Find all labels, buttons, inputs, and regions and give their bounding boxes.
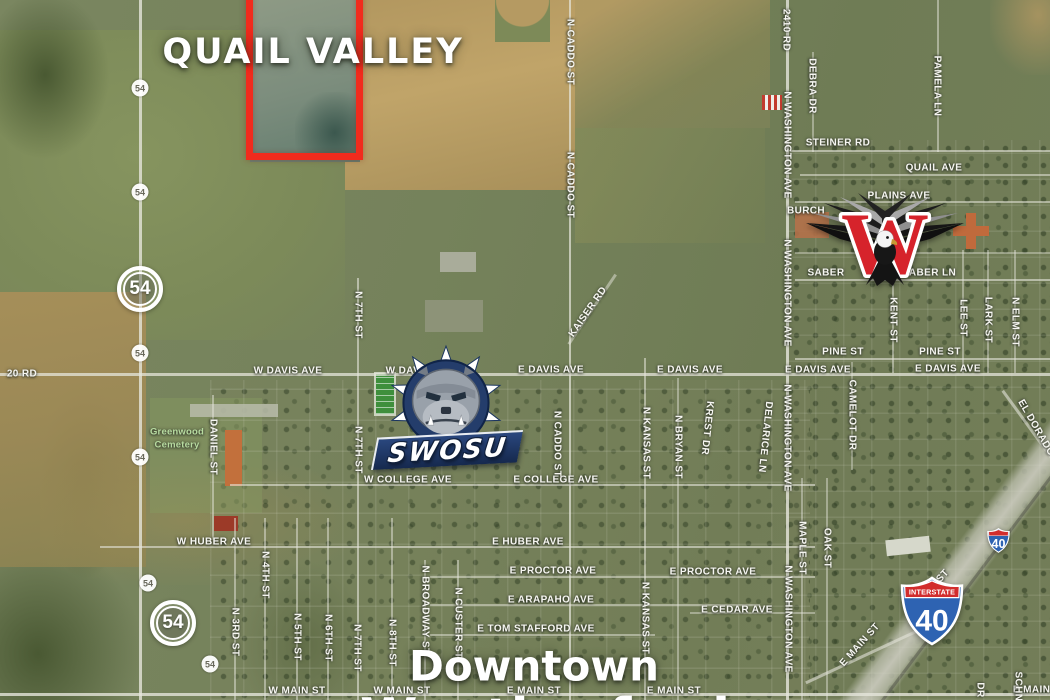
street-label: 2410 RD	[781, 9, 792, 51]
street-label: E CEDAR AVE	[701, 605, 773, 616]
street-label: OAK ST	[822, 528, 833, 568]
highway-54-marker: 54	[132, 449, 149, 466]
interstate-number: 40	[915, 605, 948, 638]
street-label: PINE ST	[919, 347, 961, 358]
terrain-field	[575, 0, 770, 128]
building	[440, 252, 476, 272]
street-label: N 7TH ST	[352, 624, 363, 672]
highway-54-number: 54	[205, 659, 215, 669]
building	[225, 430, 242, 486]
interstate-40-shield: INTERSTATE 40	[900, 574, 964, 648]
street-label: 20 RD	[7, 369, 37, 380]
interstate-number: 40	[992, 537, 1006, 551]
highway-54-marker: 54	[132, 345, 149, 362]
highway-54-marker: 54	[202, 656, 219, 673]
weatherford-eagles-logo: W	[800, 188, 970, 290]
street-label: E PROCTOR AVE	[510, 566, 597, 577]
street-label: E DAVIS AVE	[657, 365, 723, 376]
road	[430, 576, 815, 578]
street-label: W HUBER AVE	[177, 537, 251, 548]
highway-54-number: 54	[162, 612, 183, 634]
highway-54-marker: 54	[117, 266, 163, 312]
street-label: N CADDO ST	[565, 19, 576, 85]
road	[264, 518, 266, 700]
street-label: E DAVIS AVE	[915, 364, 981, 375]
road	[327, 518, 329, 700]
street-label: PAMELA LN	[932, 56, 943, 117]
street-label: N WASHINGTON AVE	[783, 565, 794, 672]
quail-valley-outline	[246, 0, 363, 160]
downtown-label-line1: Downtown	[409, 642, 659, 691]
road	[296, 518, 298, 700]
street-label: N 7TH ST	[353, 426, 364, 474]
street-label: N WASHINGTON AVE	[782, 91, 793, 198]
highway-54-number: 54	[135, 83, 145, 93]
parking-lot	[190, 404, 278, 417]
street-label: N 3RD ST	[230, 608, 241, 657]
street-label: N 6TH ST	[323, 614, 334, 662]
building	[425, 300, 483, 332]
street-label: W DAVIS AVE	[254, 366, 323, 377]
street-label: DR	[975, 682, 986, 697]
ballfield	[495, 0, 550, 42]
terrain-field	[990, 0, 1050, 75]
street-label: N WASHINGTON AVE	[782, 384, 793, 491]
road	[826, 478, 828, 700]
street-label: QUAIL AVE	[906, 163, 963, 174]
street-label: E ARAPAHO AVE	[508, 595, 594, 606]
quail-valley-title: QUAIL VALLEY	[162, 32, 463, 72]
downtown-label-line2: Weatherford	[360, 688, 730, 700]
street-label: N BRYAN ST	[673, 415, 684, 479]
building	[762, 95, 782, 110]
highway-54-number: 54	[135, 187, 145, 197]
highway-54-number: 54	[135, 348, 145, 358]
street-label: DANIEL ST	[208, 419, 219, 475]
street-label: E DAVIS AVE	[785, 365, 851, 376]
street-label: Greenwood	[150, 427, 204, 438]
street-label: KENT ST	[888, 297, 899, 343]
highway-54-marker: 54	[150, 600, 196, 646]
street-label: CAMELOT DR	[847, 380, 858, 451]
street-label: STEINER RD	[806, 138, 871, 149]
highway-54-number: 54	[129, 278, 150, 300]
street-label: Cemetery	[155, 440, 200, 451]
street-label: E HUBER AVE	[492, 537, 564, 548]
road	[790, 150, 1050, 152]
street-label: N KANSAS ST	[641, 407, 652, 479]
street-label: PINE ST	[822, 347, 864, 358]
street-label: E PROCTOR AVE	[670, 567, 757, 578]
interstate-banner-text: INTERSTATE	[909, 588, 955, 597]
road	[795, 358, 1050, 360]
interstate-40-shield-small: 40	[987, 528, 1010, 553]
road	[391, 518, 393, 700]
street-label: LEE ST	[958, 299, 969, 336]
street-label: E TOM STAFFORD AVE	[477, 624, 594, 635]
street-label: LARK ST	[983, 297, 994, 343]
street-label: KAISER RD	[567, 285, 610, 339]
street-label: N 7TH ST	[353, 291, 364, 339]
highway-54-marker: 54	[132, 80, 149, 97]
street-label: N CADDO ST	[552, 411, 563, 477]
highway-54-number: 54	[135, 452, 145, 462]
terrain-trees	[0, 0, 110, 160]
street-label: N ELM ST	[1010, 297, 1021, 347]
highway-54-number: 54	[143, 578, 153, 588]
street-label: MAPLE ST	[797, 521, 808, 575]
road	[800, 174, 1050, 176]
street-label: N CADDO ST	[565, 152, 576, 218]
street-label: W MAIN ST	[269, 686, 326, 697]
street-label: N WASHINGTON AVE	[782, 239, 793, 346]
terrain-field	[575, 128, 765, 243]
map-canvas: 20 RDW DAVIS AVEW DAVIS AVEE DAVIS AVEE …	[0, 0, 1050, 700]
highway-54-marker: 54	[140, 575, 157, 592]
street-label: N 4TH ST	[260, 551, 271, 599]
street-label: N 5TH ST	[292, 613, 303, 661]
street-label: N 8TH ST	[387, 619, 398, 667]
highway-54-marker: 54	[132, 184, 149, 201]
street-label: E DAVIS AVE	[518, 365, 584, 376]
road	[801, 478, 803, 700]
street-label: SCHNE	[1013, 671, 1024, 700]
swosu-wordmark: SWOSU	[386, 433, 509, 469]
street-label: DEBRA DR	[807, 58, 818, 114]
